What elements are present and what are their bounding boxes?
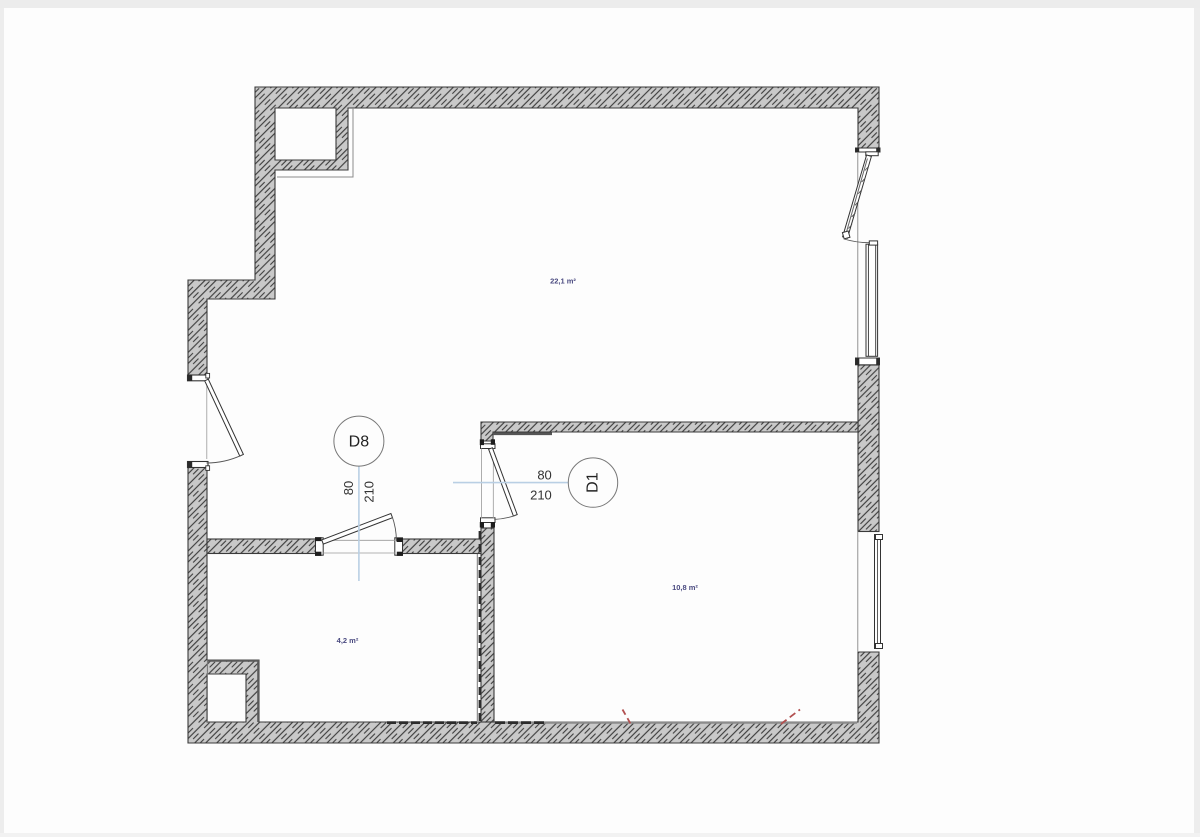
svg-text:22,1 m²: 22,1 m²	[550, 277, 576, 286]
svg-text:210: 210	[530, 488, 552, 503]
svg-text:4,2 m²: 4,2 m²	[337, 636, 359, 645]
svg-text:80: 80	[537, 468, 551, 483]
svg-text:80: 80	[341, 481, 356, 495]
svg-text:D1: D1	[585, 472, 602, 493]
svg-text:10,8 m²: 10,8 m²	[672, 583, 698, 592]
svg-text:210: 210	[361, 481, 376, 503]
svg-text:D8: D8	[349, 434, 370, 451]
